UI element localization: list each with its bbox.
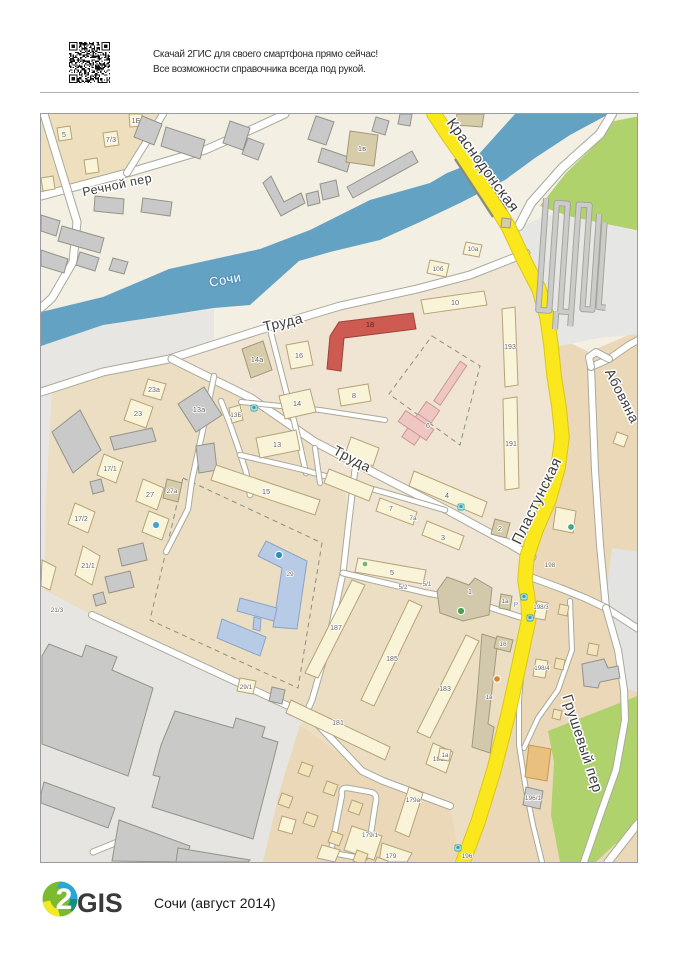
svg-text:5: 5 (390, 568, 394, 577)
svg-text:7: 7 (389, 506, 393, 513)
svg-text:198/4: 198/4 (534, 665, 550, 672)
svg-text:1а: 1а (442, 752, 449, 759)
svg-text:13а: 13а (193, 405, 206, 414)
svg-text:Р: Р (514, 602, 519, 609)
svg-text:1а: 1а (501, 598, 509, 605)
svg-text:7а: 7а (409, 515, 417, 522)
svg-text:21/1: 21/1 (81, 563, 95, 570)
svg-text:15: 15 (262, 487, 270, 496)
svg-text:16: 16 (499, 641, 507, 648)
svg-text:3: 3 (441, 533, 445, 542)
svg-text:2: 2 (56, 883, 73, 916)
svg-text:23: 23 (134, 409, 142, 418)
svg-text:193: 193 (504, 344, 516, 351)
svg-text:179а: 179а (406, 797, 421, 804)
svg-text:17/1: 17/1 (103, 466, 117, 473)
svg-text:196: 196 (462, 853, 473, 860)
svg-text:13Б: 13Б (230, 412, 242, 419)
svg-text:2: 2 (498, 524, 502, 533)
svg-text:10а: 10а (468, 246, 479, 253)
svg-text:1в: 1в (485, 694, 493, 701)
svg-text:14: 14 (293, 399, 301, 408)
svg-text:13: 13 (273, 440, 281, 449)
svg-text:198: 198 (545, 562, 556, 569)
svg-text:27а: 27а (167, 488, 178, 495)
svg-text:GIS: GIS (77, 888, 123, 918)
svg-text:185: 185 (386, 656, 398, 663)
svg-text:196/1: 196/1 (525, 795, 542, 802)
svg-text:4: 4 (445, 491, 449, 500)
svg-text:6: 6 (426, 421, 430, 430)
svg-text:1: 1 (468, 587, 472, 596)
svg-text:29/1: 29/1 (240, 684, 253, 691)
svg-text:179: 179 (386, 853, 397, 860)
svg-text:10б: 10б (433, 265, 444, 273)
svg-text:5/2: 5/2 (398, 584, 407, 591)
svg-text:183: 183 (439, 686, 451, 693)
svg-text:29: 29 (286, 571, 294, 578)
svg-text:10: 10 (451, 298, 459, 307)
svg-text:14а: 14а (251, 355, 264, 364)
svg-text:7/3: 7/3 (106, 135, 116, 144)
svg-text:191: 191 (505, 441, 517, 448)
svg-text:1в: 1в (358, 144, 366, 153)
svg-text:16: 16 (295, 351, 303, 360)
svg-text:181: 181 (332, 720, 344, 727)
svg-text:8: 8 (352, 391, 356, 400)
svg-text:17/2: 17/2 (74, 516, 88, 523)
svg-text:21/3: 21/3 (51, 607, 64, 614)
svg-text:5: 5 (62, 130, 66, 139)
svg-text:18: 18 (366, 320, 374, 329)
svg-text:187: 187 (330, 625, 342, 632)
svg-text:198/3: 198/3 (533, 604, 549, 611)
svg-text:23а: 23а (148, 387, 160, 394)
svg-text:27: 27 (146, 490, 154, 499)
svg-text:5/1: 5/1 (422, 581, 431, 588)
svg-text:179/1: 179/1 (362, 832, 379, 839)
